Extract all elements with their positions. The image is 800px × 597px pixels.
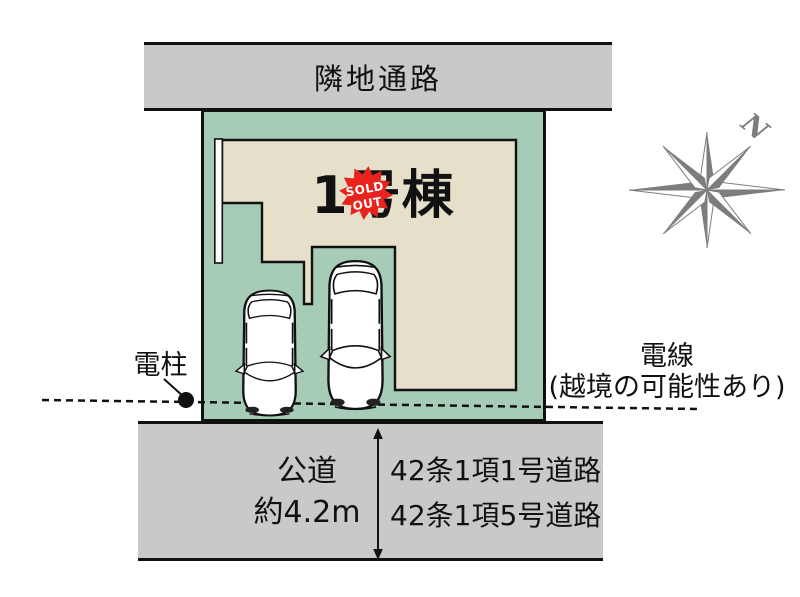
building-label: 1号棟: [278, 167, 488, 227]
road-name-block: 公道 約4.2m: [222, 451, 392, 533]
compass-rose-icon: [629, 132, 785, 248]
wire-label-line1: 電線: [536, 341, 798, 372]
road-name: 公道: [222, 451, 392, 492]
road-width: 約4.2m: [222, 492, 392, 533]
site-plan: 隣地通路: [0, 0, 800, 597]
car-icon-large: [321, 261, 390, 409]
road-classification-2: 42条1項5号道路: [390, 493, 605, 538]
wire-label-line2: (越境の可能性あり): [536, 372, 798, 403]
road-width-arrow-icon: [368, 427, 388, 561]
compass-north-label: N: [734, 107, 775, 148]
road-classification-block: 42条1項1号道路 42条1項5号道路: [390, 448, 605, 538]
building-left-wall: [215, 139, 223, 263]
car-icon-small: [236, 291, 303, 416]
wire-label: 電線 (越境の可能性あり): [536, 341, 798, 403]
utility-pole-dot: [178, 392, 194, 408]
pole-label: 電柱: [113, 350, 208, 381]
road-classification-1: 42条1項1号道路: [390, 448, 605, 493]
